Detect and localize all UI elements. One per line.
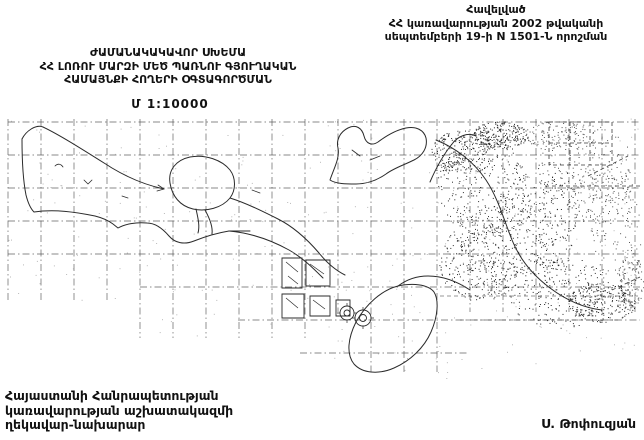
map-boundaries	[22, 126, 602, 372]
appendix-block: Հավելված ՀՀ կառավարության 2002 թվականի ս…	[352, 3, 640, 44]
map-parcels	[282, 258, 374, 329]
office-line-2: կառավարության աշխատակազմի	[5, 404, 233, 419]
office-block: Հայաստանի Հանրապետության կառավարության ա…	[5, 389, 233, 433]
signatory-name: Ս. Թոփուզյան	[541, 416, 636, 431]
office-line-3: ղեկավար-նախարար	[5, 418, 233, 433]
map-canvas	[0, 114, 644, 386]
map-scale-label: Մ 1:10000	[0, 97, 340, 111]
title-line-1: ԺԱՄԱՆԱԿԱԿԱՎՈՐ ՍԽԵՄԱ	[0, 46, 336, 60]
document-sheet: Հավելված ՀՀ կառավարության 2002 թվականի ս…	[0, 0, 644, 440]
appendix-line-1: Հավելված	[352, 3, 640, 17]
appendix-line-2: ՀՀ կառավարության 2002 թվականի	[352, 17, 640, 31]
map-title-block: ԺԱՄԱՆԱԿԱԿԱՎՈՐ ՍԽԵՄԱ ՀՀ ԼՈՌՈՒ ՄԱՐԶԻ ՄԵԾ Պ…	[0, 46, 336, 87]
map-area	[0, 114, 644, 386]
map-grid	[8, 119, 640, 372]
title-line-2: ՀՀ ԼՈՌՈՒ ՄԱՐԶԻ ՄԵԾ ՊԱՌՆՈՒ ԳՅՈՒՂԱԿԱՆ	[0, 60, 336, 74]
office-line-1: Հայաստանի Հանրապետության	[5, 389, 233, 404]
map-scan-noise	[9, 119, 639, 379]
appendix-line-3: սեպտեմբերի 19-ի N 1501-Ն որոշման	[352, 30, 640, 44]
map-settlement-stipple-dense	[432, 122, 636, 329]
title-line-3: ՀԱՄԱՅՆՔԻ ՀՈՂԵՐԻ ՕԳՏԱԳՈՐԾՄԱՆ	[0, 73, 336, 87]
